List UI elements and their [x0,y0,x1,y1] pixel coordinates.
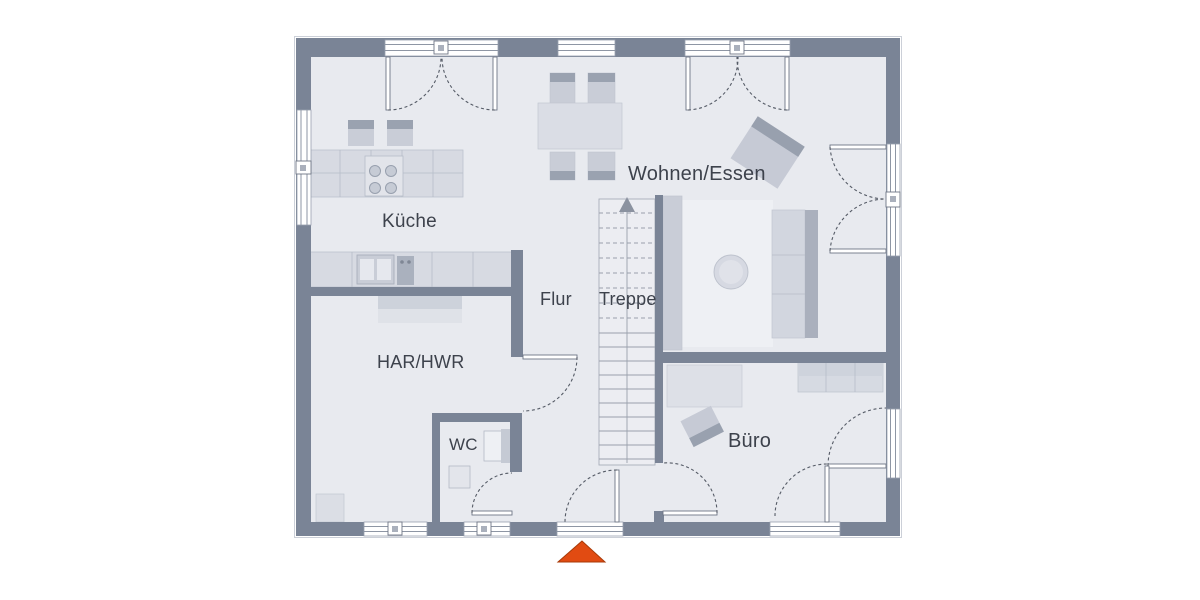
floor-plan: Küche Wohnen/Essen Flur Treppe HAR/HWR W… [0,0,1200,600]
wc-toilet [484,429,510,463]
room-label-wc: WC [449,436,478,453]
room-label-treppe: Treppe [599,290,657,308]
utility-appliance [316,494,344,522]
utility-cabinet [378,296,462,323]
kitchen-counter-top [310,150,463,197]
sideboard [663,196,682,350]
coffee-table [714,255,748,289]
office-desk [667,365,742,407]
sofa [772,210,818,338]
room-label-wohnen-essen: Wohnen/Essen [628,164,766,184]
wc-basin [449,466,470,488]
entrance-arrow-icon [558,541,605,562]
dishwasher [397,256,414,285]
entrance-threshold [557,522,623,536]
kitchen-counter-sink [310,252,515,287]
room-label-buero: Büro [728,431,771,451]
staircase [599,197,655,465]
room-label-flur: Flur [540,290,572,308]
room-label-har-hwr: HAR/HWR [377,353,464,371]
office-shelf [798,363,883,392]
room-label-kueche: Küche [382,212,437,231]
dining-table [538,103,622,149]
